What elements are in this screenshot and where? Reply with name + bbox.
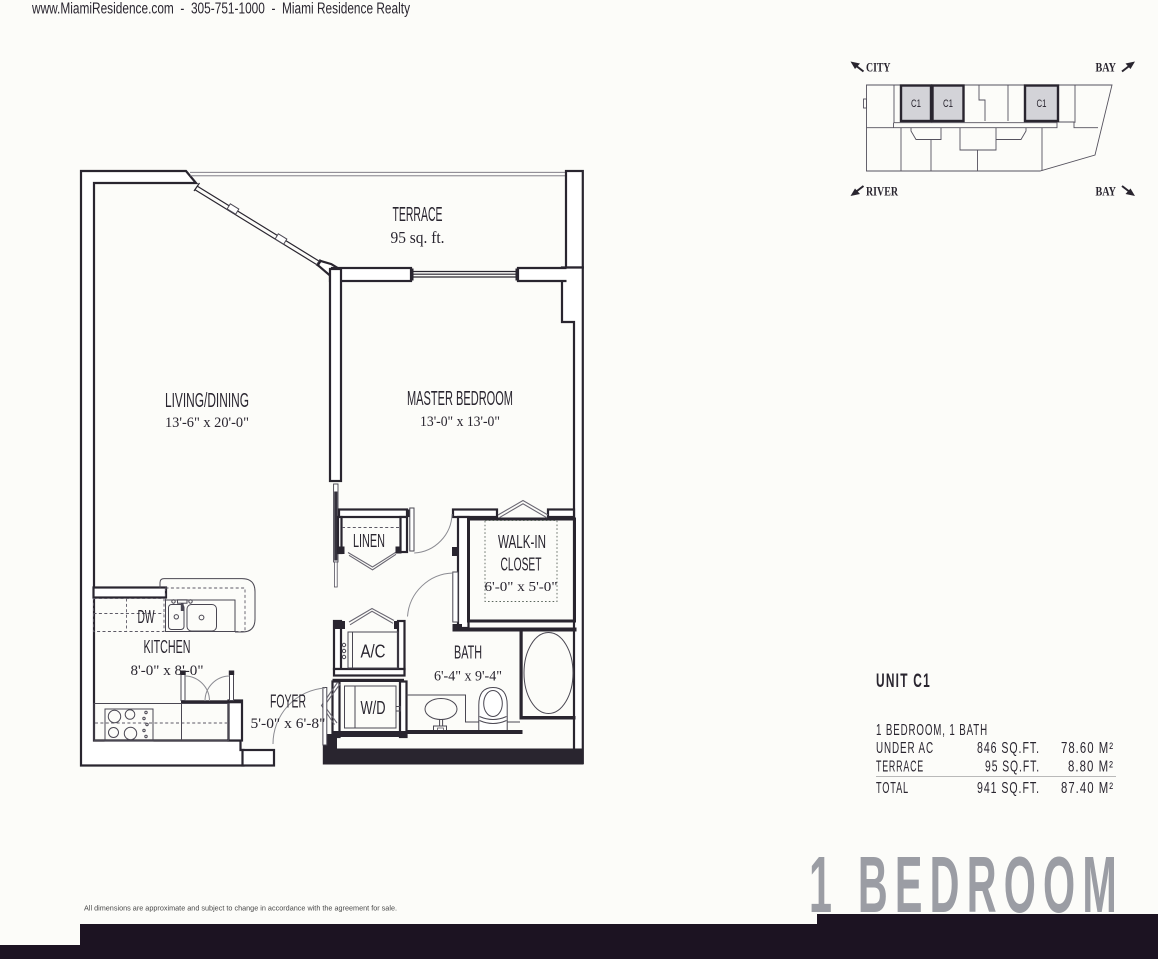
svg-text:MASTER BEDROOM: MASTER BEDROOM xyxy=(407,388,513,410)
svg-text:FOYER: FOYER xyxy=(270,692,306,712)
svg-text:All dimensions are approximate: All dimensions are approximate and subje… xyxy=(84,904,397,913)
svg-text:UNIT C1: UNIT C1 xyxy=(876,671,931,692)
svg-text:13'-6" x 20'-0": 13'-6" x 20'-0" xyxy=(165,415,249,431)
svg-text:8'-0" x 8'-0": 8'-0" x 8'-0" xyxy=(131,663,204,679)
svg-text:RIVER: RIVER xyxy=(866,185,899,199)
svg-text:CLOSET: CLOSET xyxy=(501,555,542,575)
svg-text:UNDER AC: UNDER AC xyxy=(876,740,934,757)
svg-text:941 SQ.FT.: 941 SQ.FT. xyxy=(977,780,1040,797)
svg-text:TERRACE: TERRACE xyxy=(393,204,443,226)
svg-text:78.60 M²: 78.60 M² xyxy=(1061,740,1114,757)
svg-text:A/C: A/C xyxy=(361,642,386,662)
svg-text:BAY: BAY xyxy=(1096,61,1117,75)
svg-text:LIVING/DINING: LIVING/DINING xyxy=(165,390,249,412)
svg-text:C1: C1 xyxy=(943,98,953,110)
svg-text:KITCHEN: KITCHEN xyxy=(144,637,191,657)
svg-text:WALK-IN: WALK-IN xyxy=(498,532,546,552)
svg-text:BATH: BATH xyxy=(454,643,482,663)
svg-text:C1: C1 xyxy=(911,98,921,110)
svg-text:846 SQ.FT.: 846 SQ.FT. xyxy=(977,740,1040,757)
svg-text:6'-4" x 9'-4": 6'-4" x 9'-4" xyxy=(434,669,502,685)
svg-text:CITY: CITY xyxy=(866,61,891,75)
svg-text:www.MiamiResidence.com - 305: www.MiamiResidence.com - 305-751-1000 - … xyxy=(31,1,410,18)
svg-text:95 SQ.FT.: 95 SQ.FT. xyxy=(985,759,1040,776)
svg-text:1 BEDROOM, 1 BATH: 1 BEDROOM, 1 BATH xyxy=(876,722,988,739)
svg-text:BAY: BAY xyxy=(1096,185,1117,199)
svg-text:6'-0" x 5'-0": 6'-0" x 5'-0" xyxy=(485,579,558,594)
svg-text:95 sq. ft.: 95 sq. ft. xyxy=(391,228,445,247)
svg-text:TOTAL: TOTAL xyxy=(876,780,909,797)
svg-text:TERRACE: TERRACE xyxy=(876,759,924,776)
svg-text:C1: C1 xyxy=(1037,98,1047,110)
svg-text:5'-0" x 6'-8": 5'-0" x 6'-8" xyxy=(251,716,326,732)
svg-text:87.40 M²: 87.40 M² xyxy=(1061,780,1114,797)
svg-text:8.80 M²: 8.80 M² xyxy=(1068,759,1114,776)
svg-text:13'-0" x 13'-0": 13'-0" x 13'-0" xyxy=(420,414,500,430)
svg-text:DW: DW xyxy=(138,607,155,627)
svg-text:W/D: W/D xyxy=(361,698,386,718)
svg-text:LINEN: LINEN xyxy=(353,531,385,551)
